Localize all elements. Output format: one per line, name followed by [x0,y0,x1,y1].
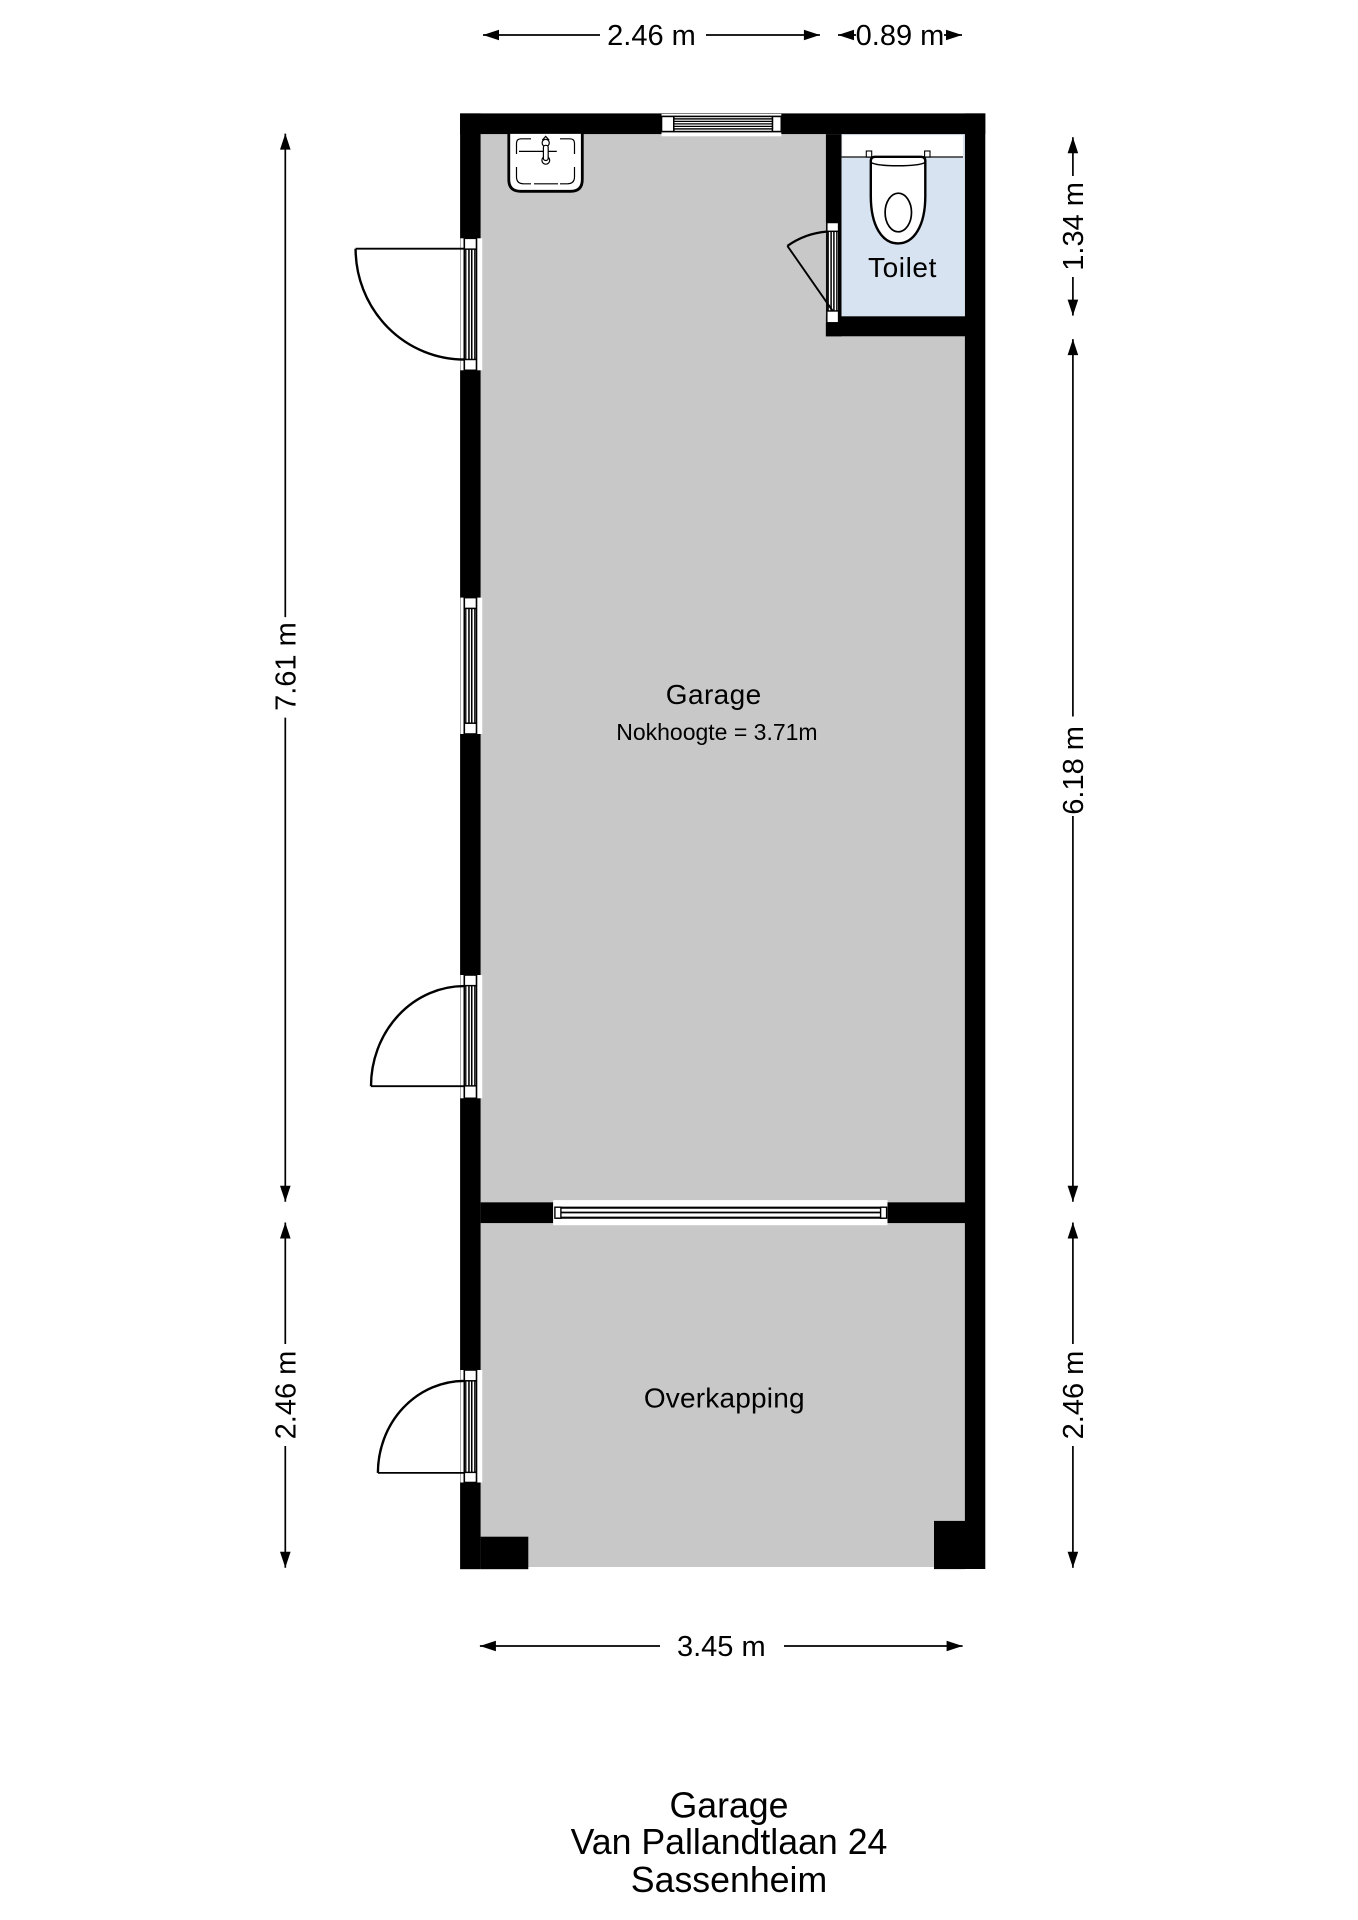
svg-text:1.34 m: 1.34 m [1058,182,1090,271]
svg-text:Toilet: Toilet [868,252,937,283]
svg-text:Overkapping: Overkapping [644,1383,805,1414]
svg-text:Nokhoogte = 3.71m: Nokhoogte = 3.71m [616,719,817,745]
svg-text:Sassenheim: Sassenheim [631,1860,827,1900]
svg-text:2.46 m: 2.46 m [271,1351,303,1440]
svg-text:0.89 m: 0.89 m [856,20,945,52]
svg-text:2.46 m: 2.46 m [607,20,696,52]
svg-text:Garage: Garage [669,1786,788,1826]
svg-text:Garage: Garage [666,679,762,710]
svg-text:3.45 m: 3.45 m [677,1631,766,1663]
svg-text:7.61 m: 7.61 m [271,622,303,711]
svg-text:2.46 m: 2.46 m [1058,1351,1090,1440]
svg-text:Van Pallandtlaan 24: Van Pallandtlaan 24 [571,1822,888,1862]
svg-text:6.18 m: 6.18 m [1058,726,1090,815]
